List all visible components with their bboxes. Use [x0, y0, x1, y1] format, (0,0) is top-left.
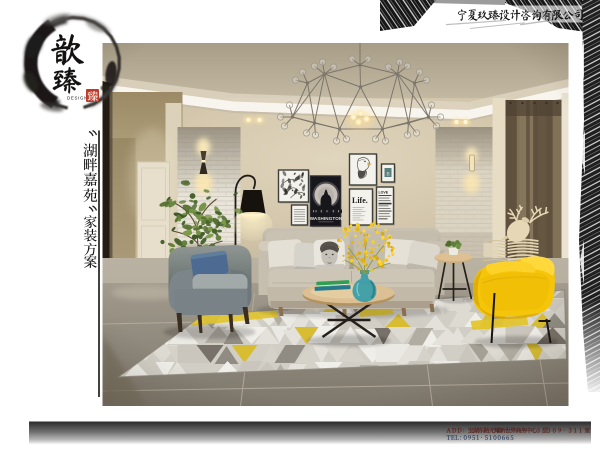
svg-text:DESIGN: DESIGN: [67, 96, 88, 101]
